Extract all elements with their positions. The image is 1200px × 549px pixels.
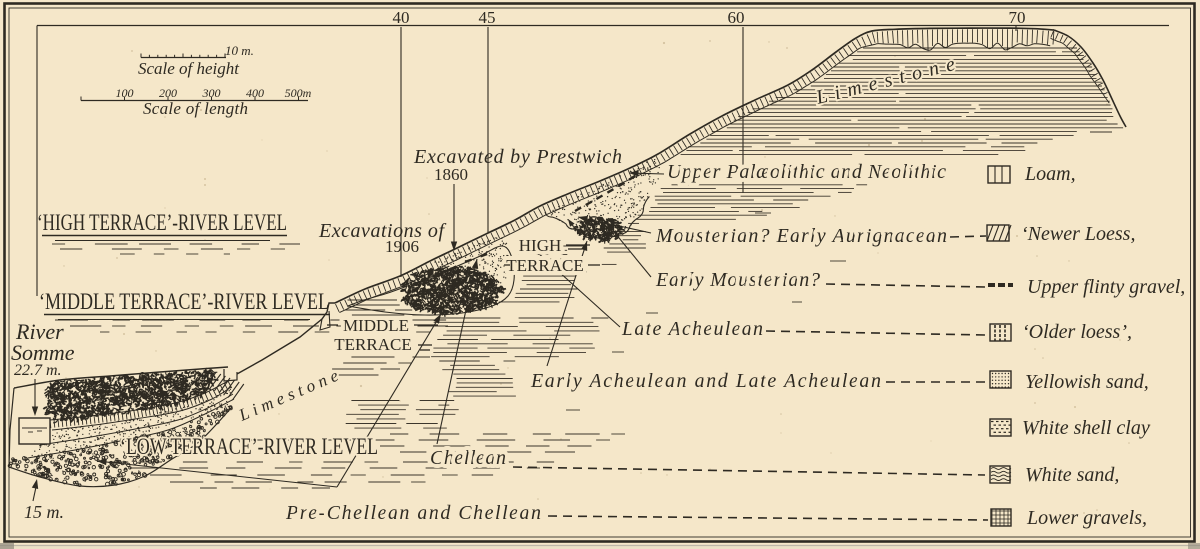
svg-text:Scale of length: Scale of length: [143, 99, 248, 118]
svg-text:200: 200: [159, 86, 177, 100]
svg-text:Pre-Chellean and Chellean: Pre-Chellean and Chellean: [285, 502, 541, 524]
svg-text:500m: 500m: [285, 86, 312, 100]
svg-text:‘Newer Loess,: ‘Newer Loess,: [1021, 223, 1135, 245]
svg-text:TERRACE: TERRACE: [334, 335, 411, 354]
svg-text:400: 400: [246, 86, 264, 100]
svg-text:10 m.: 10 m.: [225, 43, 254, 58]
svg-text:Early Acheulean and Late Acheu: Early Acheulean and Late Acheulean: [530, 370, 881, 392]
svg-text:300: 300: [202, 86, 221, 100]
svg-text:MIDDLE: MIDDLE: [343, 316, 409, 335]
svg-text:Early Mousterian?: Early Mousterian?: [655, 269, 820, 291]
svg-text:1860: 1860: [434, 165, 468, 184]
svg-text:Loam,: Loam,: [1024, 163, 1076, 185]
svg-text:‘Older loess’,: ‘Older loess’,: [1022, 321, 1132, 343]
svg-text:Mousterian? Early Aurignacean: Mousterian? Early Aurignacean: [655, 225, 947, 247]
svg-text:100: 100: [116, 86, 134, 100]
svg-text:Lower gravels,: Lower gravels,: [1026, 507, 1147, 529]
svg-text:White sand,: White sand,: [1025, 464, 1119, 486]
svg-text:Scale of height: Scale of height: [138, 59, 240, 78]
svg-text:TERRACE: TERRACE: [506, 256, 583, 275]
svg-text:Excavations of: Excavations of: [318, 220, 446, 242]
svg-text:HIGH: HIGH: [519, 236, 562, 255]
svg-text:40: 40: [393, 8, 410, 27]
svg-text:Upper flinty gravel,: Upper flinty gravel,: [1027, 276, 1185, 298]
svg-text:Yellowish sand,: Yellowish sand,: [1025, 371, 1149, 393]
svg-text:‘MIDDLE TERRACE’-RIVER LEVEL: ‘MIDDLE TERRACE’-RIVER LEVEL: [39, 289, 329, 314]
svg-text:White shell clay: White shell clay: [1022, 417, 1150, 439]
svg-text:22.7 m.: 22.7 m.: [14, 362, 62, 379]
svg-text:70: 70: [1009, 8, 1026, 27]
svg-text:1906: 1906: [385, 237, 419, 256]
svg-text:Chellean: Chellean: [430, 447, 506, 469]
svg-text:15 m.: 15 m.: [24, 502, 64, 522]
svg-text:Upper Palæolithic and Neolithi: Upper Palæolithic and Neolithic: [667, 161, 946, 183]
svg-text:‘LOW TERRACE’-RIVER LEVEL: ‘LOW TERRACE’-RIVER LEVEL: [120, 434, 378, 459]
svg-text:‘HIGH TERRACE’-RIVER LEVEL: ‘HIGH TERRACE’-RIVER LEVEL: [37, 210, 287, 235]
svg-text:60: 60: [728, 8, 745, 27]
svg-text:45: 45: [479, 8, 496, 27]
svg-text:Late Acheulean: Late Acheulean: [621, 318, 763, 340]
